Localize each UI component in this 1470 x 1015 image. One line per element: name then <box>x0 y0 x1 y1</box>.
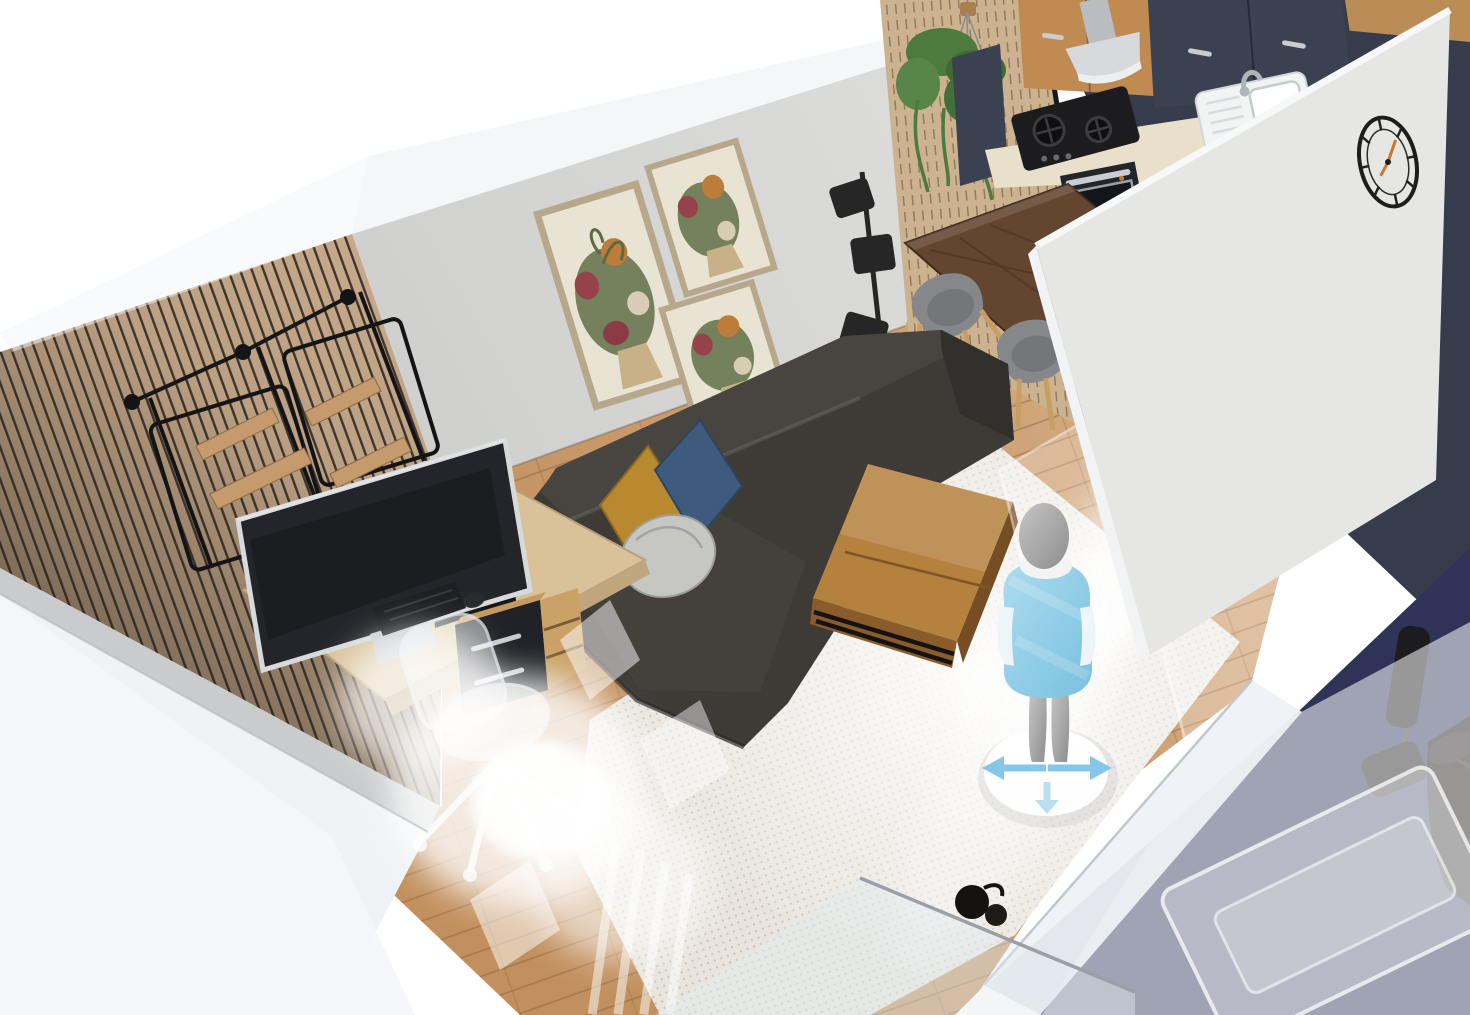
shelf-mount <box>124 394 140 410</box>
shelf-mount <box>235 344 251 360</box>
lamp-shade <box>850 233 897 274</box>
3d-viewport[interactable] <box>0 0 1470 1015</box>
shelf-mount <box>340 289 356 305</box>
app-window <box>0 0 1470 1015</box>
avatar-head <box>1019 503 1069 569</box>
